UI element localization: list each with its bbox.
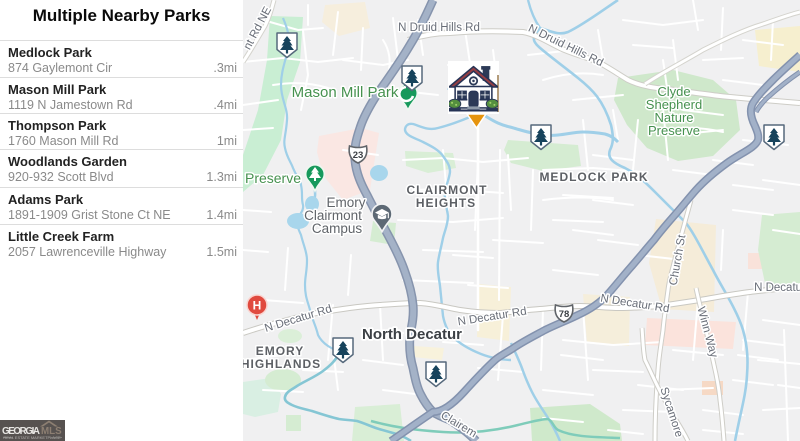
svg-text:Mason Mill Park: Mason Mill Park (292, 84, 399, 101)
svg-text:Preserve: Preserve (648, 123, 700, 138)
svg-text:78: 78 (559, 309, 570, 320)
svg-text:H: H (253, 299, 262, 313)
svg-text:Preserve: Preserve (245, 170, 301, 186)
svg-text:MEDLOCK PARK: MEDLOCK PARK (539, 170, 648, 184)
svg-text:CLAIRMONT: CLAIRMONT (407, 183, 488, 197)
svg-text:Campus: Campus (312, 221, 363, 236)
svg-text:23: 23 (353, 150, 364, 161)
svg-text:HEIGHTS: HEIGHTS (416, 196, 476, 210)
svg-text:N Druid Hills Rd: N Druid Hills Rd (398, 22, 480, 34)
svg-text:HIGHLANDS: HIGHLANDS (243, 357, 321, 371)
svg-text:N Decatur: N Decatur (754, 282, 800, 294)
svg-text:EMORY: EMORY (256, 344, 305, 358)
svg-text:North Decatur: North Decatur (362, 326, 462, 343)
